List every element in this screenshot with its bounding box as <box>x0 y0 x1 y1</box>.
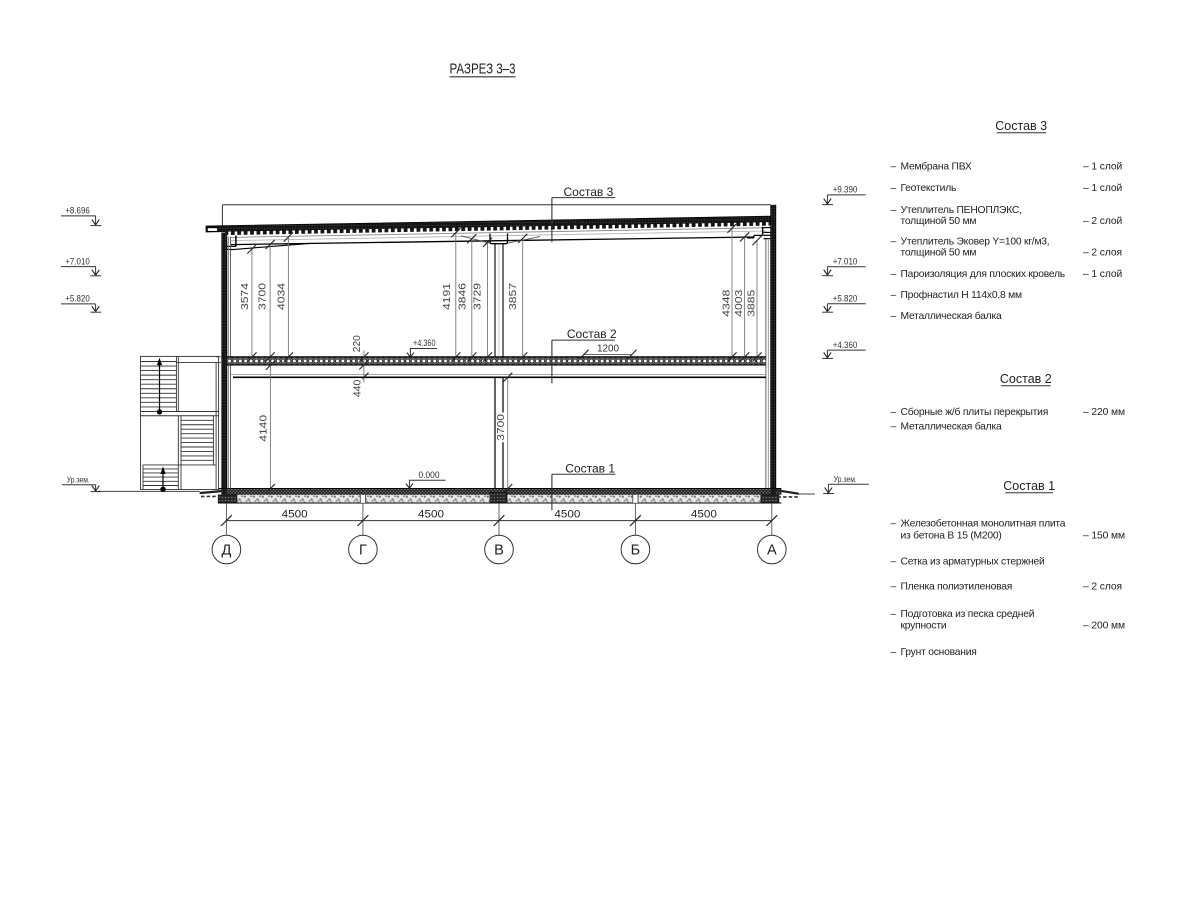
svg-text:Ур.зем.: Ур.зем. <box>834 474 857 484</box>
svg-text:–: – <box>891 422 897 433</box>
svg-text:крупности: крупности <box>901 621 947 632</box>
svg-text:Ур.зем.: Ур.зем. <box>67 475 90 485</box>
svg-text:– 220 мм: – 220 мм <box>1083 407 1125 418</box>
svg-text:– 2 слой: – 2 слой <box>1083 216 1122 227</box>
svg-text:+8.696: +8.696 <box>65 206 90 216</box>
svg-text:–: – <box>891 269 897 280</box>
svg-text:– 1 слой: – 1 слой <box>1083 269 1122 280</box>
svg-text:Утеплитель ПЕНОПЛЭКС,: Утеплитель ПЕНОПЛЭКС, <box>901 205 1022 216</box>
svg-text:3857: 3857 <box>507 283 519 310</box>
svg-text:Сетка из арматурных стержней: Сетка из арматурных стержней <box>901 557 1045 568</box>
svg-text:+5.820: +5.820 <box>833 294 858 304</box>
svg-text:0.000: 0.000 <box>419 470 440 480</box>
svg-text:Подготовка из песка средней: Подготовка из песка средней <box>901 609 1035 620</box>
svg-text:–: – <box>891 519 897 530</box>
svg-text:– 1 слой: – 1 слой <box>1083 162 1122 173</box>
svg-text:440: 440 <box>352 380 364 398</box>
svg-text:1200: 1200 <box>597 343 619 354</box>
svg-text:Состав 3: Состав 3 <box>564 185 614 199</box>
svg-text:4500: 4500 <box>691 508 717 520</box>
svg-text:– 200 мм: – 200 мм <box>1083 621 1125 632</box>
svg-text:– 1 слой: – 1 слой <box>1083 183 1122 194</box>
svg-text:3700: 3700 <box>256 283 268 310</box>
svg-text:–: – <box>891 311 897 322</box>
svg-text:Б: Б <box>631 543 641 559</box>
svg-text:Геотекстиль: Геотекстиль <box>901 183 957 194</box>
svg-text:4500: 4500 <box>282 508 308 520</box>
svg-text:+5.820: +5.820 <box>65 294 90 304</box>
svg-text:–: – <box>891 183 897 194</box>
svg-text:Металлическая балка: Металлическая балка <box>901 421 1002 433</box>
svg-text:Сборные ж/б плиты перекрытия: Сборные ж/б плиты перекрытия <box>901 406 1049 418</box>
svg-text:Металлическая балка: Металлическая балка <box>901 310 1002 322</box>
svg-text:+7.010: +7.010 <box>833 257 858 267</box>
svg-text:– 2 слоя: – 2 слоя <box>1083 582 1122 593</box>
svg-text:3729: 3729 <box>471 283 483 310</box>
svg-text:Мембрана ПВХ: Мембрана ПВХ <box>901 161 972 173</box>
svg-text:4003: 4003 <box>733 290 745 317</box>
svg-text:– 2 слоя: – 2 слоя <box>1083 248 1122 259</box>
svg-text:– 150 мм: – 150 мм <box>1083 531 1125 542</box>
svg-text:Пароизоляция для плоских крове: Пароизоляция для плоских кровель <box>901 269 1065 280</box>
svg-text:–: – <box>891 647 897 658</box>
svg-text:Грунт основания: Грунт основания <box>901 647 977 658</box>
svg-text:толщиной 50 мм: толщиной 50 мм <box>901 216 977 227</box>
svg-text:4034: 4034 <box>275 283 287 310</box>
svg-text:+4.360: +4.360 <box>413 338 436 348</box>
svg-text:–: – <box>891 407 897 418</box>
svg-text:Состав 1: Состав 1 <box>565 462 615 476</box>
svg-text:Д: Д <box>221 543 231 559</box>
svg-text:Профнастил Н 114х0.8 мм: Профнастил Н 114х0.8 мм <box>901 289 1022 301</box>
svg-text:3700: 3700 <box>495 414 507 441</box>
svg-text:–: – <box>891 290 897 301</box>
svg-text:4500: 4500 <box>418 508 444 520</box>
svg-text:+9.390: +9.390 <box>833 185 858 195</box>
svg-text:Состав 3: Состав 3 <box>995 119 1047 133</box>
svg-text:Г: Г <box>359 543 367 559</box>
svg-text:Состав 2: Состав 2 <box>1000 372 1052 386</box>
svg-text:Состав 1: Состав 1 <box>1003 479 1055 493</box>
svg-text:+4.360: +4.360 <box>833 340 858 350</box>
svg-text:4191: 4191 <box>441 283 453 310</box>
svg-text:–: – <box>891 205 897 216</box>
svg-text:РАЗРЕЗ 3–3: РАЗРЕЗ 3–3 <box>450 62 516 78</box>
svg-text:4348: 4348 <box>721 290 733 317</box>
svg-text:3885: 3885 <box>746 290 758 317</box>
svg-text:+7.010: +7.010 <box>65 256 90 266</box>
svg-text:220: 220 <box>351 335 363 352</box>
svg-text:В: В <box>494 543 504 559</box>
svg-text:–: – <box>891 557 897 568</box>
svg-text:А: А <box>767 543 777 559</box>
svg-text:3846: 3846 <box>457 283 469 310</box>
svg-text:–: – <box>891 237 897 248</box>
svg-text:из бетона В 15 (М200): из бетона В 15 (М200) <box>901 530 1002 542</box>
svg-text:–: – <box>891 162 897 173</box>
svg-text:Железобетонная монолитная пли: Железобетонная монолитная плита <box>901 518 1066 530</box>
svg-text:Утеплитель Эковер Y=100 кг/м3,: Утеплитель Эковер Y=100 кг/м3, <box>901 237 1050 248</box>
svg-text:3574: 3574 <box>239 283 251 310</box>
svg-text:толщиной 50 мм: толщиной 50 мм <box>901 248 977 259</box>
svg-text:–: – <box>891 582 897 593</box>
svg-text:–: – <box>891 609 897 620</box>
svg-text:4500: 4500 <box>554 508 580 520</box>
svg-text:Пленка полиэтиленовая: Пленка полиэтиленовая <box>901 582 1013 593</box>
svg-text:Состав 2: Состав 2 <box>567 327 617 341</box>
svg-text:4140: 4140 <box>257 415 269 442</box>
